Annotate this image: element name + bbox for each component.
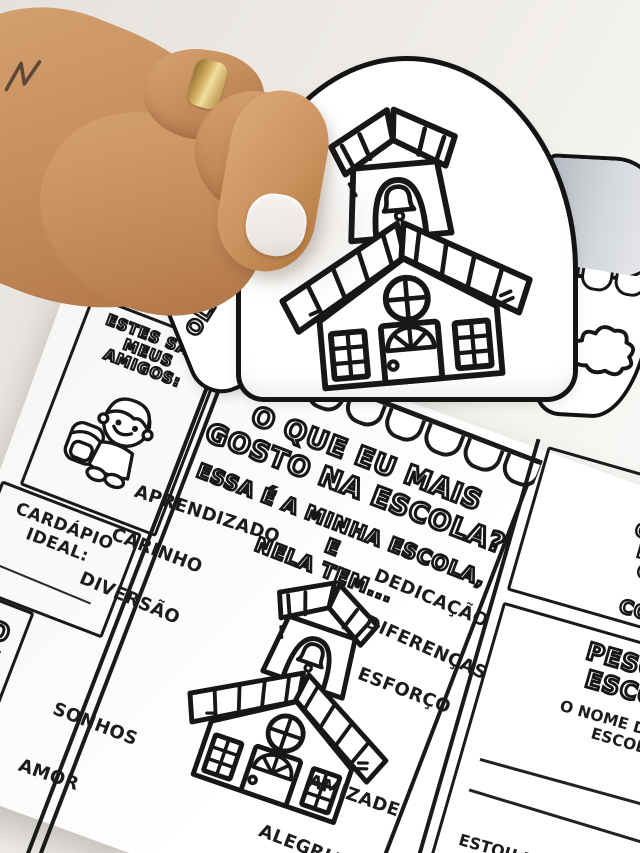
awning-scallop [579,268,614,294]
awning-scallop [459,437,505,476]
schoolhouse-illustration-crown [239,86,565,401]
word-amor: AMOR [16,755,82,795]
gold-ring [185,56,230,111]
wrist-tattoo [1,53,49,104]
awning-scallop [419,422,465,461]
crown-band-fragment-1: DA [178,247,215,288]
awning-scallop [613,273,640,299]
crown-dome [236,56,578,402]
boy-with-backpack-illustration [52,373,179,504]
survey-grade-prefix: ESTOU NA [457,830,550,853]
crown-band-fragment-2: OLA [181,287,225,340]
photo-scene: ESTES SÃO MEUS AMIGOS: CARDÁPIO IDEAL: E… [0,0,640,853]
